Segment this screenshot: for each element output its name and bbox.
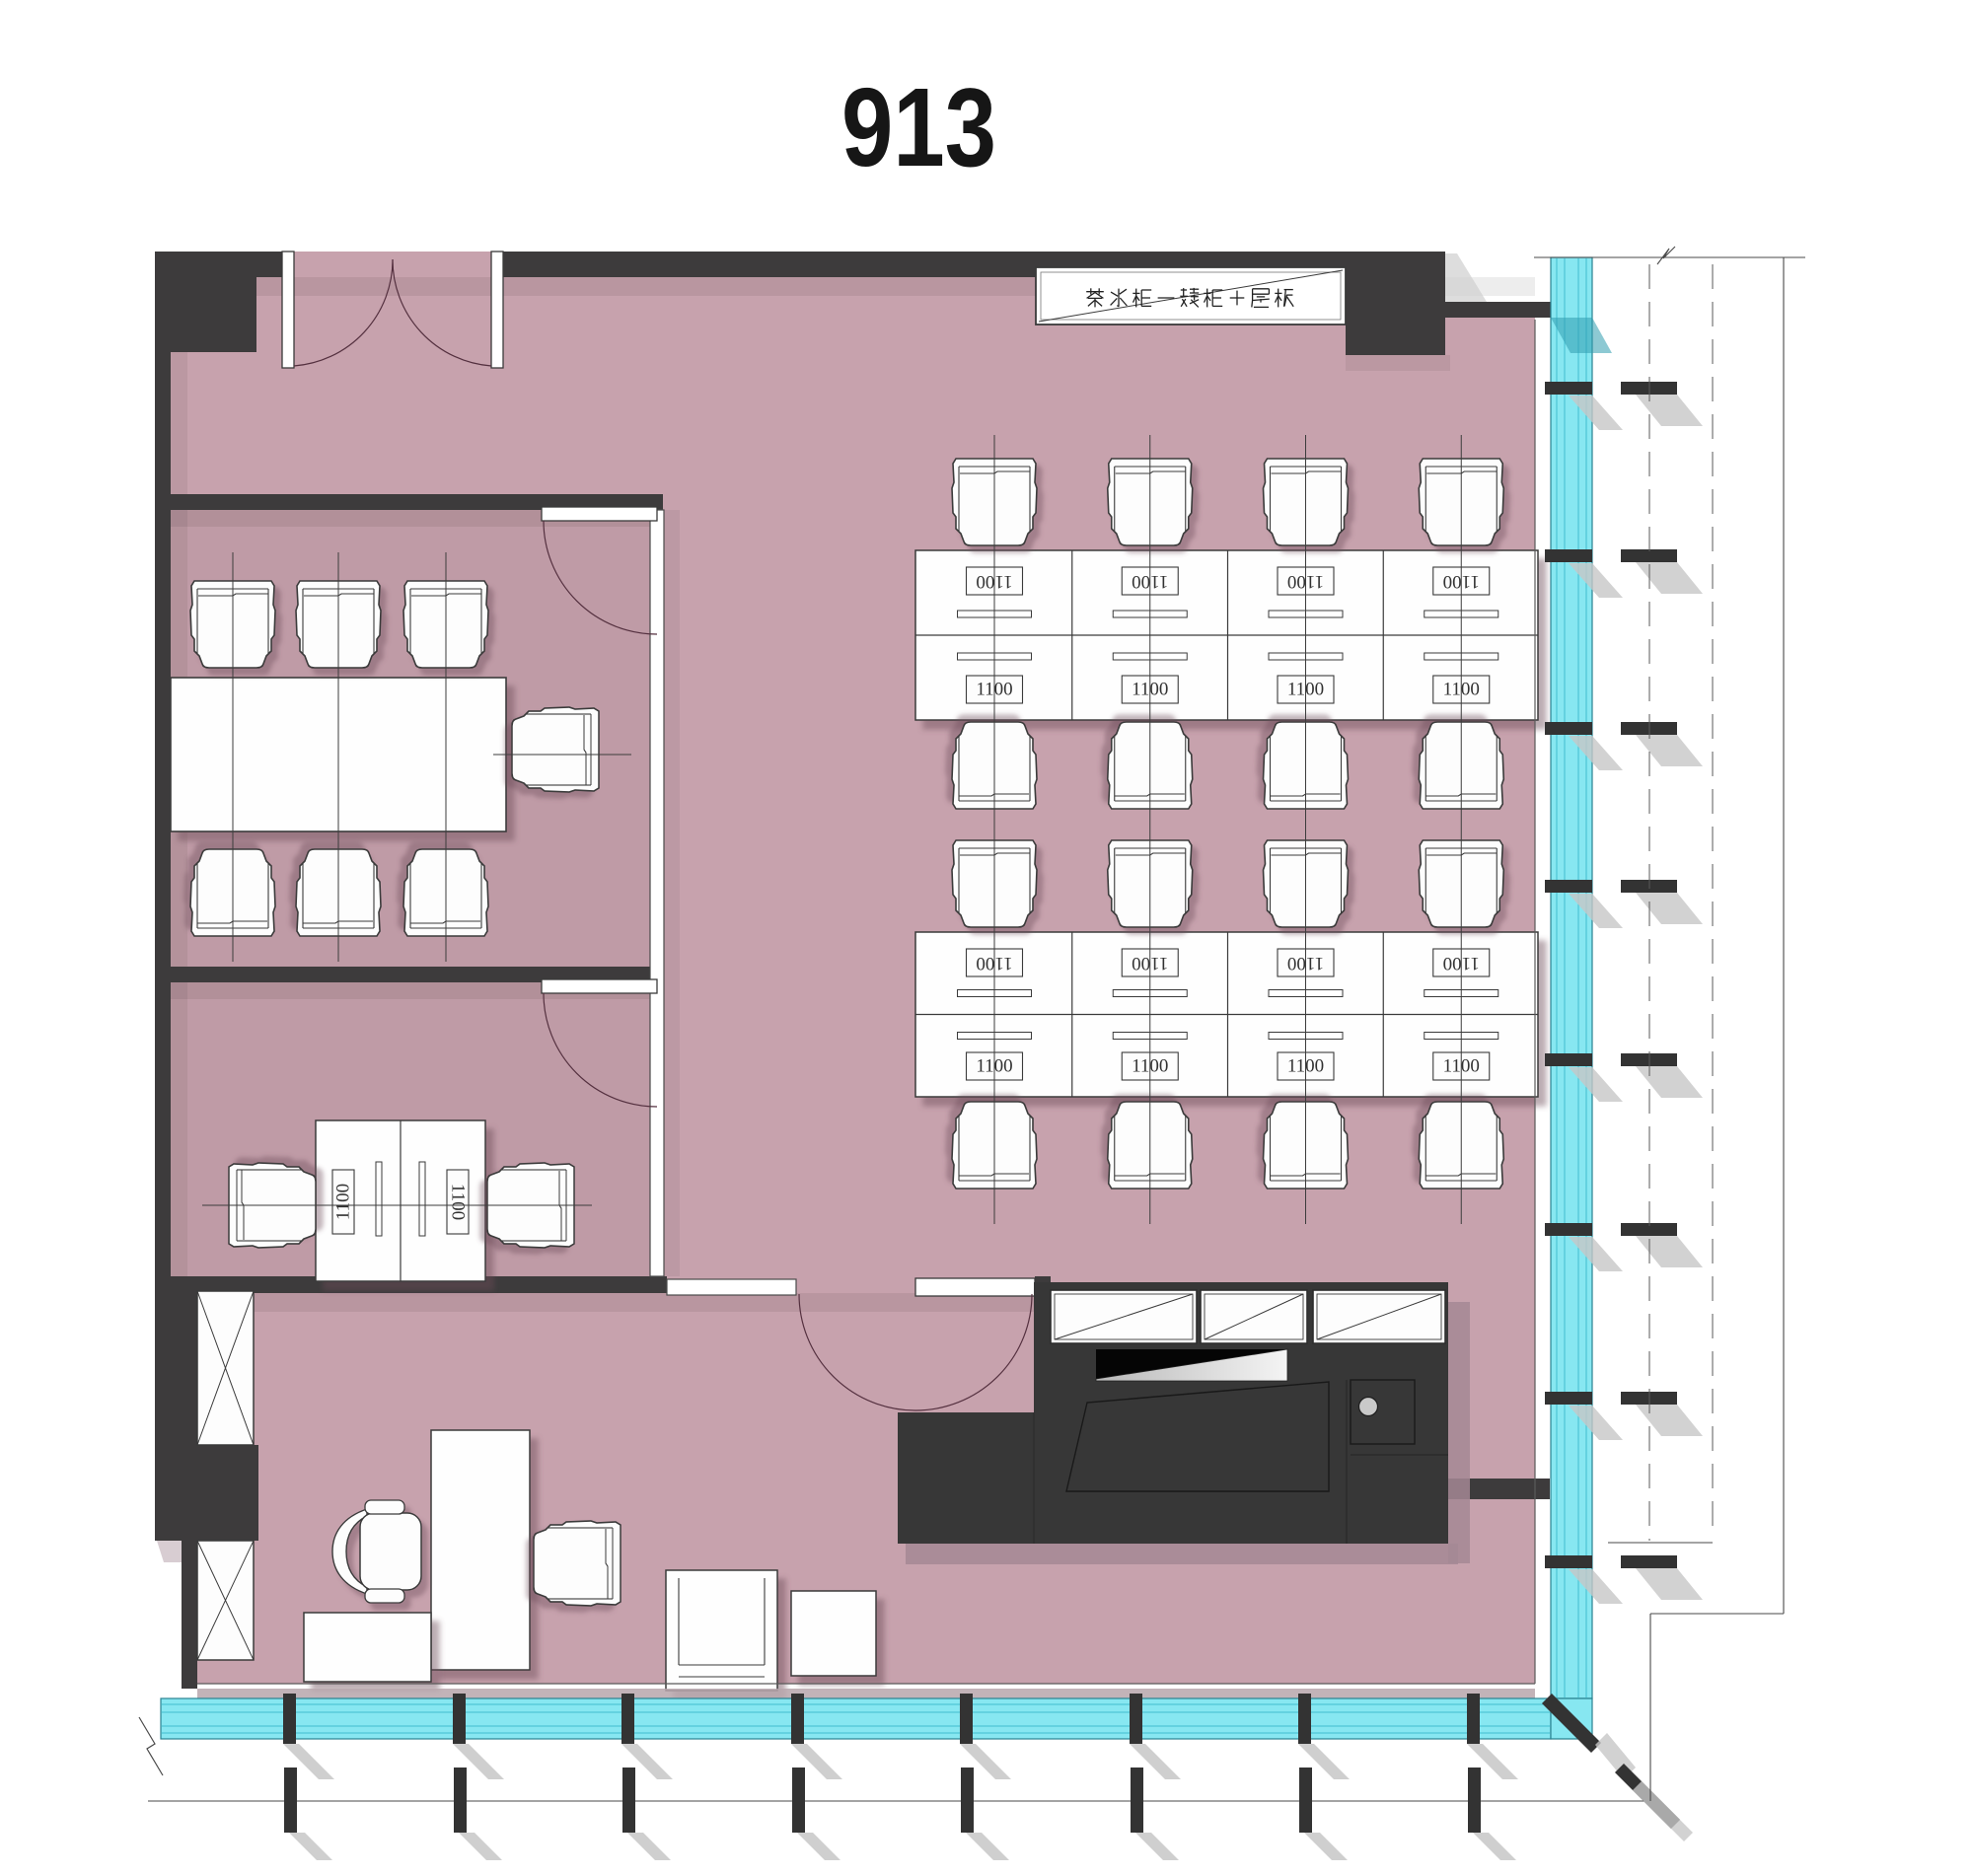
svg-text:1100: 1100 xyxy=(333,1184,354,1220)
svg-text:1100: 1100 xyxy=(448,1184,469,1220)
svg-text:913: 913 xyxy=(841,65,996,189)
